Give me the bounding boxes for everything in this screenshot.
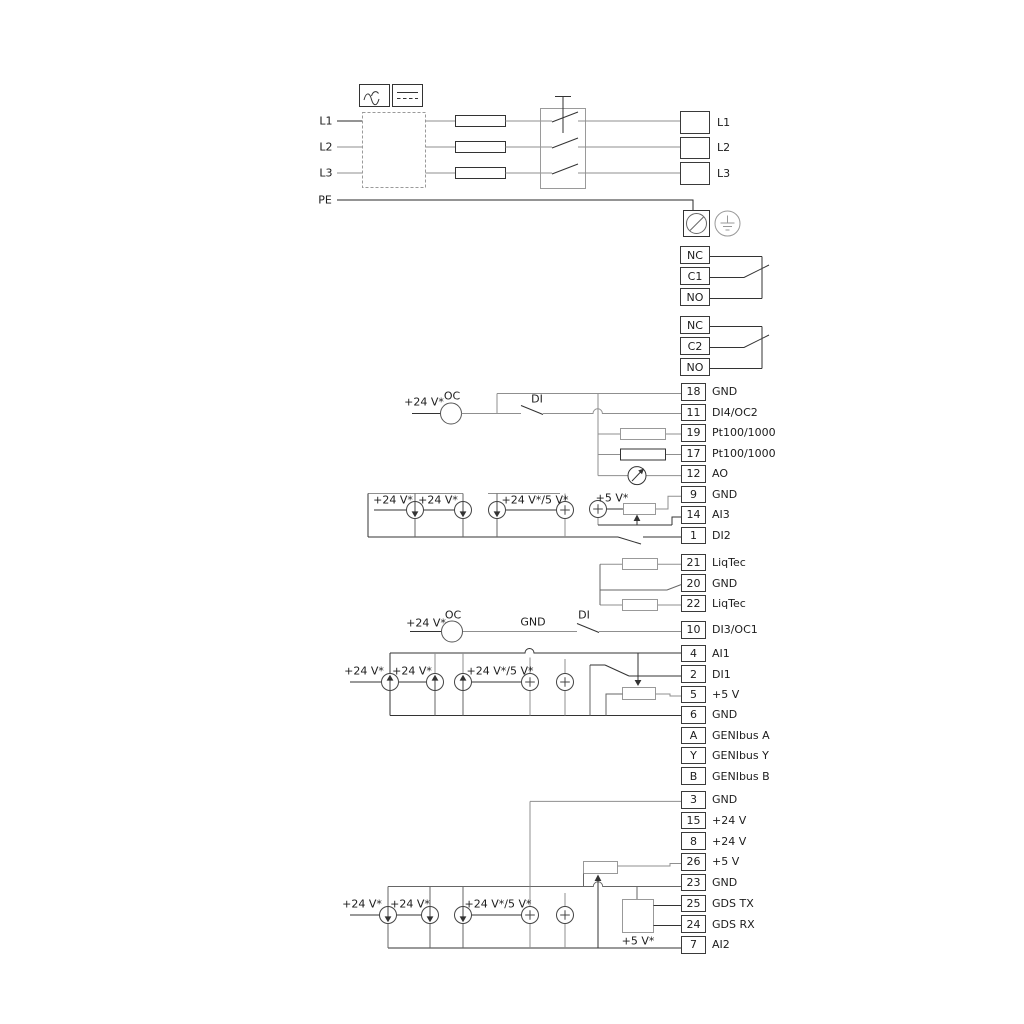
terminal-14: 14 xyxy=(681,506,706,524)
terminal-label-2: DI1 xyxy=(712,665,731,682)
main-switch xyxy=(541,97,586,189)
wiring-diagram: L1L2L3 NCC1NO NCC2NO 18GND11DI4/OC219Pt1… xyxy=(0,0,1024,1024)
mains-label-l1: L1 xyxy=(319,114,332,127)
screw-terminal-icon xyxy=(684,211,710,237)
label-plus24v: +24 V* xyxy=(404,396,444,409)
terminal-label-20: GND xyxy=(712,574,737,591)
terminal-label-21: LiqTec xyxy=(712,554,746,571)
terminal-label-25: GDS TX xyxy=(712,895,754,913)
terminal-c2: C2 xyxy=(680,337,710,355)
resistor xyxy=(623,559,658,570)
di1-switch xyxy=(605,665,629,676)
terminal-label-l3: L3 xyxy=(717,162,730,185)
terminal-7: 7 xyxy=(681,936,706,954)
terminal-no: NO xyxy=(680,358,710,376)
resistor xyxy=(623,600,658,611)
terminal-l3 xyxy=(680,162,710,185)
analog-output-wiring xyxy=(598,467,681,485)
pt100-sensor-wiring xyxy=(598,429,681,461)
resistor xyxy=(621,449,666,460)
terminal-15: 15 xyxy=(681,812,706,830)
earth-ground-icon xyxy=(715,211,740,236)
fuses xyxy=(456,116,506,179)
terminal-label-18: GND xyxy=(712,383,737,401)
di-switch xyxy=(521,406,543,415)
liqtec-wiring xyxy=(600,559,681,611)
label-plus24v-5v: +24 V*/5 V* xyxy=(502,494,569,507)
sensor-supply-options-2 xyxy=(350,649,681,716)
terminal-21: 21 xyxy=(681,554,706,571)
terminal-label-4: AI1 xyxy=(712,645,730,662)
label-plus24v-5v: +24 V*/5 V* xyxy=(465,898,532,911)
terminal-label-19: Pt100/1000 xyxy=(712,424,776,442)
terminal-label-8: +24 V xyxy=(712,832,746,850)
terminal-label-15: +24 V xyxy=(712,812,746,830)
label-plus5v: +5 V* xyxy=(622,935,655,948)
diagram-graphics xyxy=(0,0,1024,1024)
label-plus24v: +24 V* xyxy=(390,898,430,911)
mains-section xyxy=(337,85,693,211)
voltage-source-icon xyxy=(557,907,574,924)
terminal-label-a: GENIbus A xyxy=(712,727,770,744)
resistor xyxy=(621,429,666,440)
terminal-label-1: DI2 xyxy=(712,527,731,545)
terminal-label-y: GENIbus Y xyxy=(712,747,769,764)
terminal-nc: NC xyxy=(680,246,710,264)
label-plus24v: +24 V* xyxy=(406,617,446,630)
label-di: DI xyxy=(531,393,543,406)
sensor-supply-options-3 xyxy=(350,801,681,948)
terminal-l1 xyxy=(680,111,710,134)
label-plus24v: +24 V* xyxy=(392,665,432,678)
terminal-label-l2: L2 xyxy=(717,137,730,160)
terminal-2: 2 xyxy=(681,665,706,682)
voltage-source-icon xyxy=(557,674,574,691)
terminal-24: 24 xyxy=(681,915,706,933)
label-plus24v: +24 V* xyxy=(418,494,458,507)
terminal-9: 9 xyxy=(681,486,706,504)
terminal-26: 26 xyxy=(681,853,706,871)
terminal-nc: NC xyxy=(680,316,710,334)
terminal-20: 20 xyxy=(681,574,706,591)
dc-icon xyxy=(393,85,423,107)
label-oc: OC xyxy=(444,390,460,403)
label-di: DI xyxy=(578,609,590,622)
terminal-l2 xyxy=(680,137,710,160)
terminal-label-5: +5 V xyxy=(712,686,739,703)
terminal-6: 6 xyxy=(681,706,706,723)
terminal-1: 1 xyxy=(681,527,706,545)
terminal-label-10: DI3/OC1 xyxy=(712,621,758,639)
gds-sensor-wiring xyxy=(623,887,682,933)
terminal-y: Y xyxy=(681,747,706,764)
terminal-label-23: GND xyxy=(712,874,737,892)
terminal-label-17: Pt100/1000 xyxy=(712,445,776,463)
relay-1-contact xyxy=(710,257,769,299)
terminal-label-14: AI3 xyxy=(712,506,730,524)
terminal-label-22: LiqTec xyxy=(712,595,746,612)
terminal-18: 18 xyxy=(681,383,706,401)
terminal-c1: C1 xyxy=(680,267,710,285)
terminal-no: NO xyxy=(680,288,710,306)
terminal-22: 22 xyxy=(681,595,706,612)
label-gnd: GND xyxy=(520,616,545,629)
label-plus24v: +24 V* xyxy=(344,665,384,678)
relay-2-contact xyxy=(710,327,769,369)
terminal-label-11: DI4/OC2 xyxy=(712,404,758,422)
label-oc: OC xyxy=(445,609,461,622)
terminal-5: 5 xyxy=(681,686,706,703)
terminal-label-7: AI2 xyxy=(712,936,730,954)
mains-label-l2: L2 xyxy=(319,140,332,153)
label-plus5v: +5 V* xyxy=(596,492,629,505)
terminal-label-12: AO xyxy=(712,465,728,483)
terminal-label-6: GND xyxy=(712,706,737,723)
terminal-3: 3 xyxy=(681,791,706,809)
terminal-8: 8 xyxy=(681,832,706,850)
terminal-23: 23 xyxy=(681,874,706,892)
label-plus24v: +24 V* xyxy=(373,494,413,507)
potentiometer-2 xyxy=(606,653,681,716)
terminal-label-24: GDS RX xyxy=(712,915,755,933)
terminal-25: 25 xyxy=(681,895,706,913)
terminal-b: B xyxy=(681,767,706,784)
terminal-12: 12 xyxy=(681,465,706,483)
di2-switch xyxy=(618,537,641,544)
mains-label-pe: PE xyxy=(318,193,332,206)
terminal-11: 11 xyxy=(681,404,706,422)
terminal-4: 4 xyxy=(681,645,706,662)
ac-icon xyxy=(360,85,390,107)
terminal-label-l1: L1 xyxy=(717,111,730,134)
terminal-17: 17 xyxy=(681,445,706,463)
terminal-19: 19 xyxy=(681,424,706,442)
terminal-10: 10 xyxy=(681,621,706,639)
label-plus24v-5v: +24 V*/5 V* xyxy=(467,665,534,678)
terminal-label-9: GND xyxy=(712,486,737,504)
emc-filter-box xyxy=(363,113,426,188)
terminal-label-26: +5 V xyxy=(712,853,739,871)
label-plus24v: +24 V* xyxy=(342,898,382,911)
mains-label-l3: L3 xyxy=(319,166,332,179)
terminal-label-3: GND xyxy=(712,791,737,809)
di3-switch xyxy=(577,624,599,633)
pe-ground-terminals xyxy=(684,211,741,237)
gds-sensor-box xyxy=(623,900,654,933)
terminal-a: A xyxy=(681,727,706,744)
terminal-label-b: GENIbus B xyxy=(712,767,770,784)
